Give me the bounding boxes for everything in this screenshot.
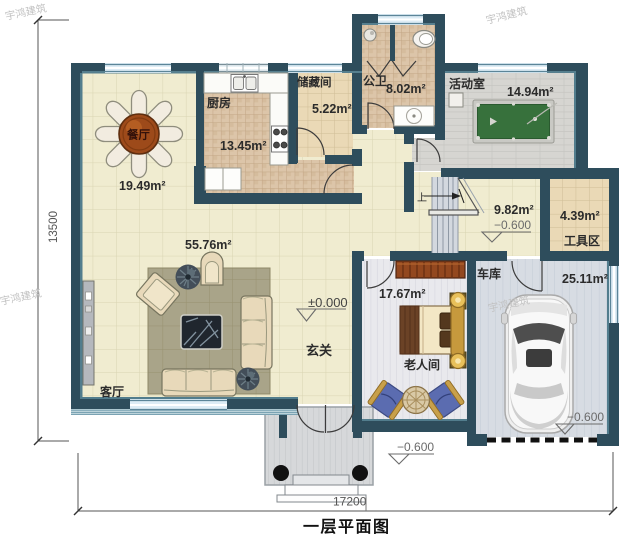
- svg-text:17200: 17200: [333, 495, 367, 509]
- svg-text:车库: 车库: [477, 266, 501, 281]
- svg-text:厨房: 厨房: [207, 95, 231, 110]
- svg-text:4.39m²: 4.39m²: [560, 209, 600, 223]
- svg-text:玄关: 玄关: [306, 343, 332, 358]
- svg-text:活动室: 活动室: [449, 76, 485, 91]
- svg-text:上: 上: [417, 192, 427, 204]
- svg-text:工具区: 工具区: [564, 234, 600, 248]
- svg-text:±0.000: ±0.000: [308, 295, 348, 310]
- svg-text:25.11m²: 25.11m²: [562, 272, 608, 286]
- svg-text:−0.600: −0.600: [567, 410, 604, 424]
- svg-text:13.45m²: 13.45m²: [220, 139, 267, 153]
- svg-text:−0.600: −0.600: [494, 218, 531, 232]
- svg-text:19.49m²: 19.49m²: [119, 179, 166, 193]
- svg-text:5.22m²: 5.22m²: [312, 102, 352, 116]
- svg-text:55.76m²: 55.76m²: [185, 238, 232, 252]
- svg-text:8.02m²: 8.02m²: [386, 82, 426, 96]
- svg-text:−0.600: −0.600: [397, 440, 434, 454]
- svg-text:客厅: 客厅: [99, 384, 124, 399]
- svg-text:14.94m²: 14.94m²: [507, 85, 554, 99]
- svg-text:餐厅: 餐厅: [126, 128, 150, 142]
- svg-text:9.82m²: 9.82m²: [494, 203, 534, 217]
- svg-text:老人间: 老人间: [404, 357, 440, 372]
- svg-text:一层平面图: 一层平面图: [303, 518, 391, 536]
- svg-text:公卫: 公卫: [363, 74, 387, 88]
- svg-text:13500: 13500: [48, 211, 60, 243]
- svg-text:17.67m²: 17.67m²: [379, 287, 426, 301]
- svg-text:储藏间: 储藏间: [297, 75, 332, 89]
